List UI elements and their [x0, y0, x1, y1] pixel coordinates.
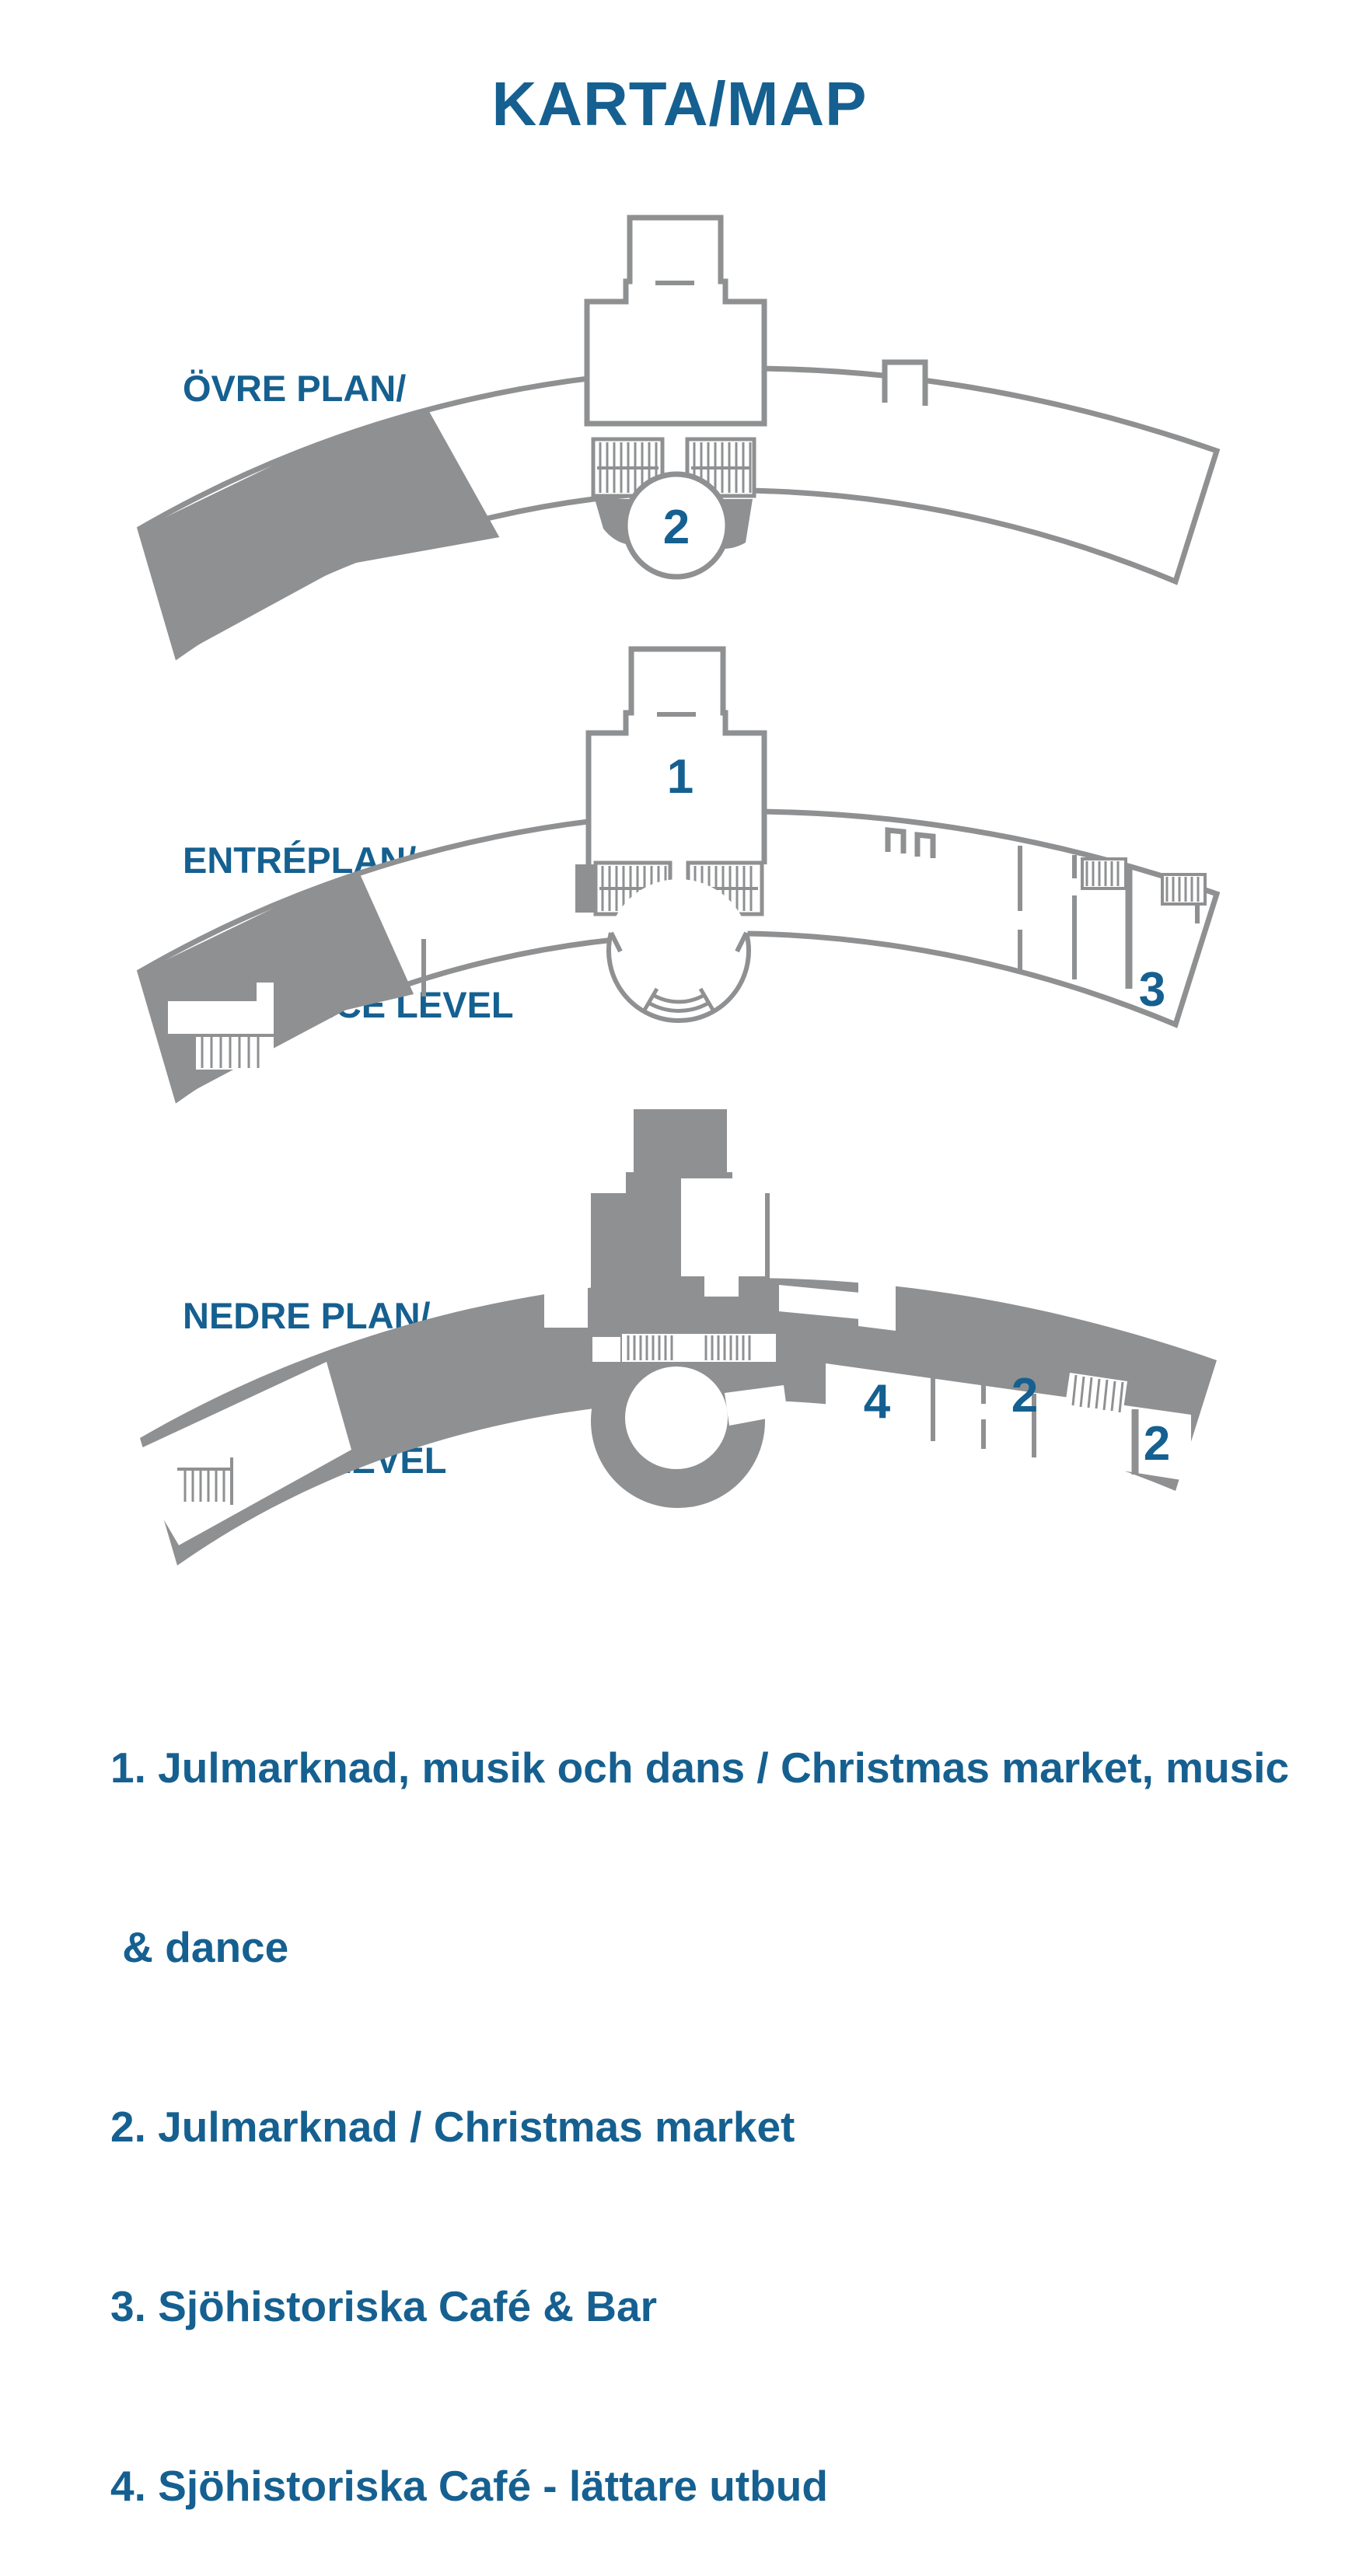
left-end-stairs: [202, 1035, 258, 1068]
edge-eraser: [889, 395, 921, 406]
marker-3: 3: [1139, 963, 1165, 1017]
tower-door: [704, 1276, 739, 1297]
legend-line-1b: & dance: [110, 1918, 1292, 1977]
page-title: KARTA/MAP: [0, 68, 1359, 140]
legend-line-2: 2. Julmarknad / Christmas market: [110, 2097, 1292, 2157]
closed-area-left-end: [143, 875, 412, 1097]
closed-area-left-wing: [143, 410, 498, 654]
marker-2-upper: 2: [663, 501, 690, 554]
left-corridor: [544, 1286, 588, 1328]
marker-4: 4: [864, 1375, 891, 1429]
legend-line-1: 1. Julmarknad, musik och dans / Christma…: [110, 1738, 1292, 1798]
legend-line-3: 3. Sjöhistoriska Café & Bar: [110, 2277, 1292, 2337]
legend-line-4: 4. Sjöhistoriska Café - lättare utbud: [110, 2456, 1292, 2516]
staircase-band: [592, 1334, 776, 1362]
floor-plan-lower: 4 2 2: [0, 1104, 1359, 1601]
marker-2-right: 2: [1144, 1417, 1170, 1471]
top-edge-stub: [917, 835, 933, 858]
marker-1: 1: [667, 750, 693, 804]
marker-2-mid: 2: [1011, 1369, 1038, 1422]
top-edge-stub: [888, 830, 903, 853]
rotunda-void: [625, 1367, 728, 1469]
entrance-porch: [607, 879, 750, 1022]
side-room: [858, 1269, 896, 1331]
floor-plan-entrance: 1: [0, 637, 1359, 1119]
stair-core: [575, 864, 596, 913]
floor-plan-upper: 2: [0, 194, 1359, 676]
central-tower: [587, 218, 764, 424]
tower-room: [681, 1178, 765, 1276]
legend: 1. Julmarknad, musik och dans / Christma…: [110, 1618, 1292, 2576]
